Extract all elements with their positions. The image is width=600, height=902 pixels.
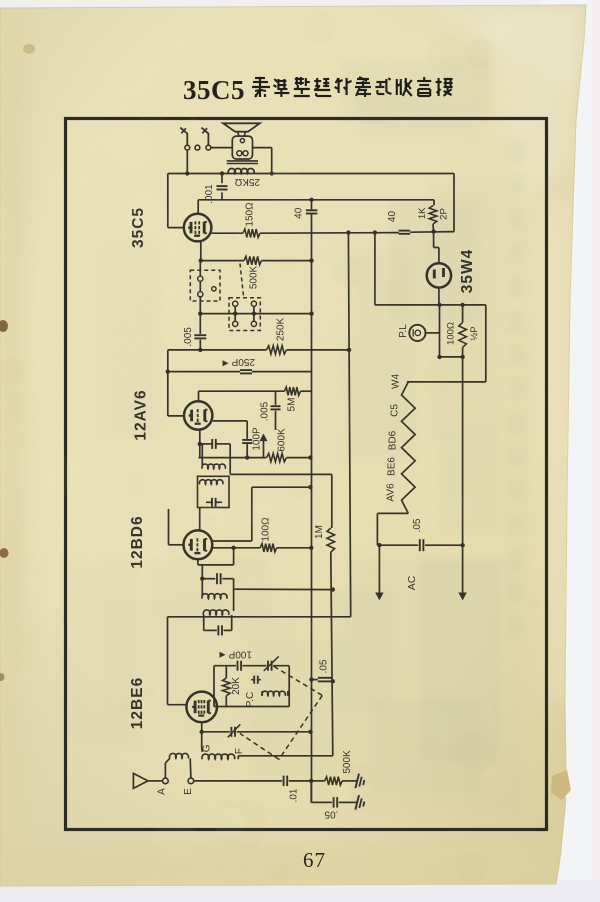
svg-text:35W4: 35W4 [459,249,476,294]
svg-text:A: A [156,788,167,795]
svg-text:.005: .005 [259,401,270,421]
svg-text:100P: 100P [251,427,262,451]
svg-text:BE6: BE6 [387,457,398,476]
svg-text:25KΩ: 25KΩ [234,176,260,187]
svg-text:250P: 250P [231,356,255,367]
svg-text:.005: .005 [183,327,194,347]
svg-text:P.C: P.C [245,692,256,707]
svg-text:40: 40 [387,211,398,223]
svg-text:250K: 250K [275,317,286,341]
svg-text:½P: ½P [469,326,480,340]
svg-text:F: F [234,748,245,754]
svg-text:12AV6: 12AV6 [132,389,149,440]
svg-text:500K: 500K [248,265,259,289]
svg-text:.05: .05 [324,808,338,819]
svg-text:150Ω: 150Ω [244,202,255,227]
svg-text:.01: .01 [288,788,299,802]
svg-text:C5: C5 [390,404,401,417]
svg-text:1K: 1K [417,207,428,219]
svg-text:5M: 5M [287,398,298,412]
svg-text:2P: 2P [439,208,450,220]
svg-text:67: 67 [303,848,326,872]
svg-text:G: G [201,744,212,752]
svg-text:E: E [183,788,194,795]
svg-text:1M: 1M [314,525,325,539]
svg-text:.05: .05 [412,518,423,532]
svg-text:BD6: BD6 [388,430,399,450]
svg-text:100P: 100P [228,649,252,660]
svg-text:100Ω: 100Ω [446,322,457,345]
svg-text:AV6: AV6 [386,483,397,502]
svg-text:35C5: 35C5 [183,75,245,105]
svg-text:.001: .001 [204,184,215,204]
svg-text:.05: .05 [318,659,329,673]
svg-text:600K: 600K [276,428,287,452]
svg-text:P.L: P.L [398,324,409,338]
svg-text:W4: W4 [391,374,402,389]
svg-text:20K: 20K [231,677,242,695]
svg-text:40: 40 [293,207,304,219]
